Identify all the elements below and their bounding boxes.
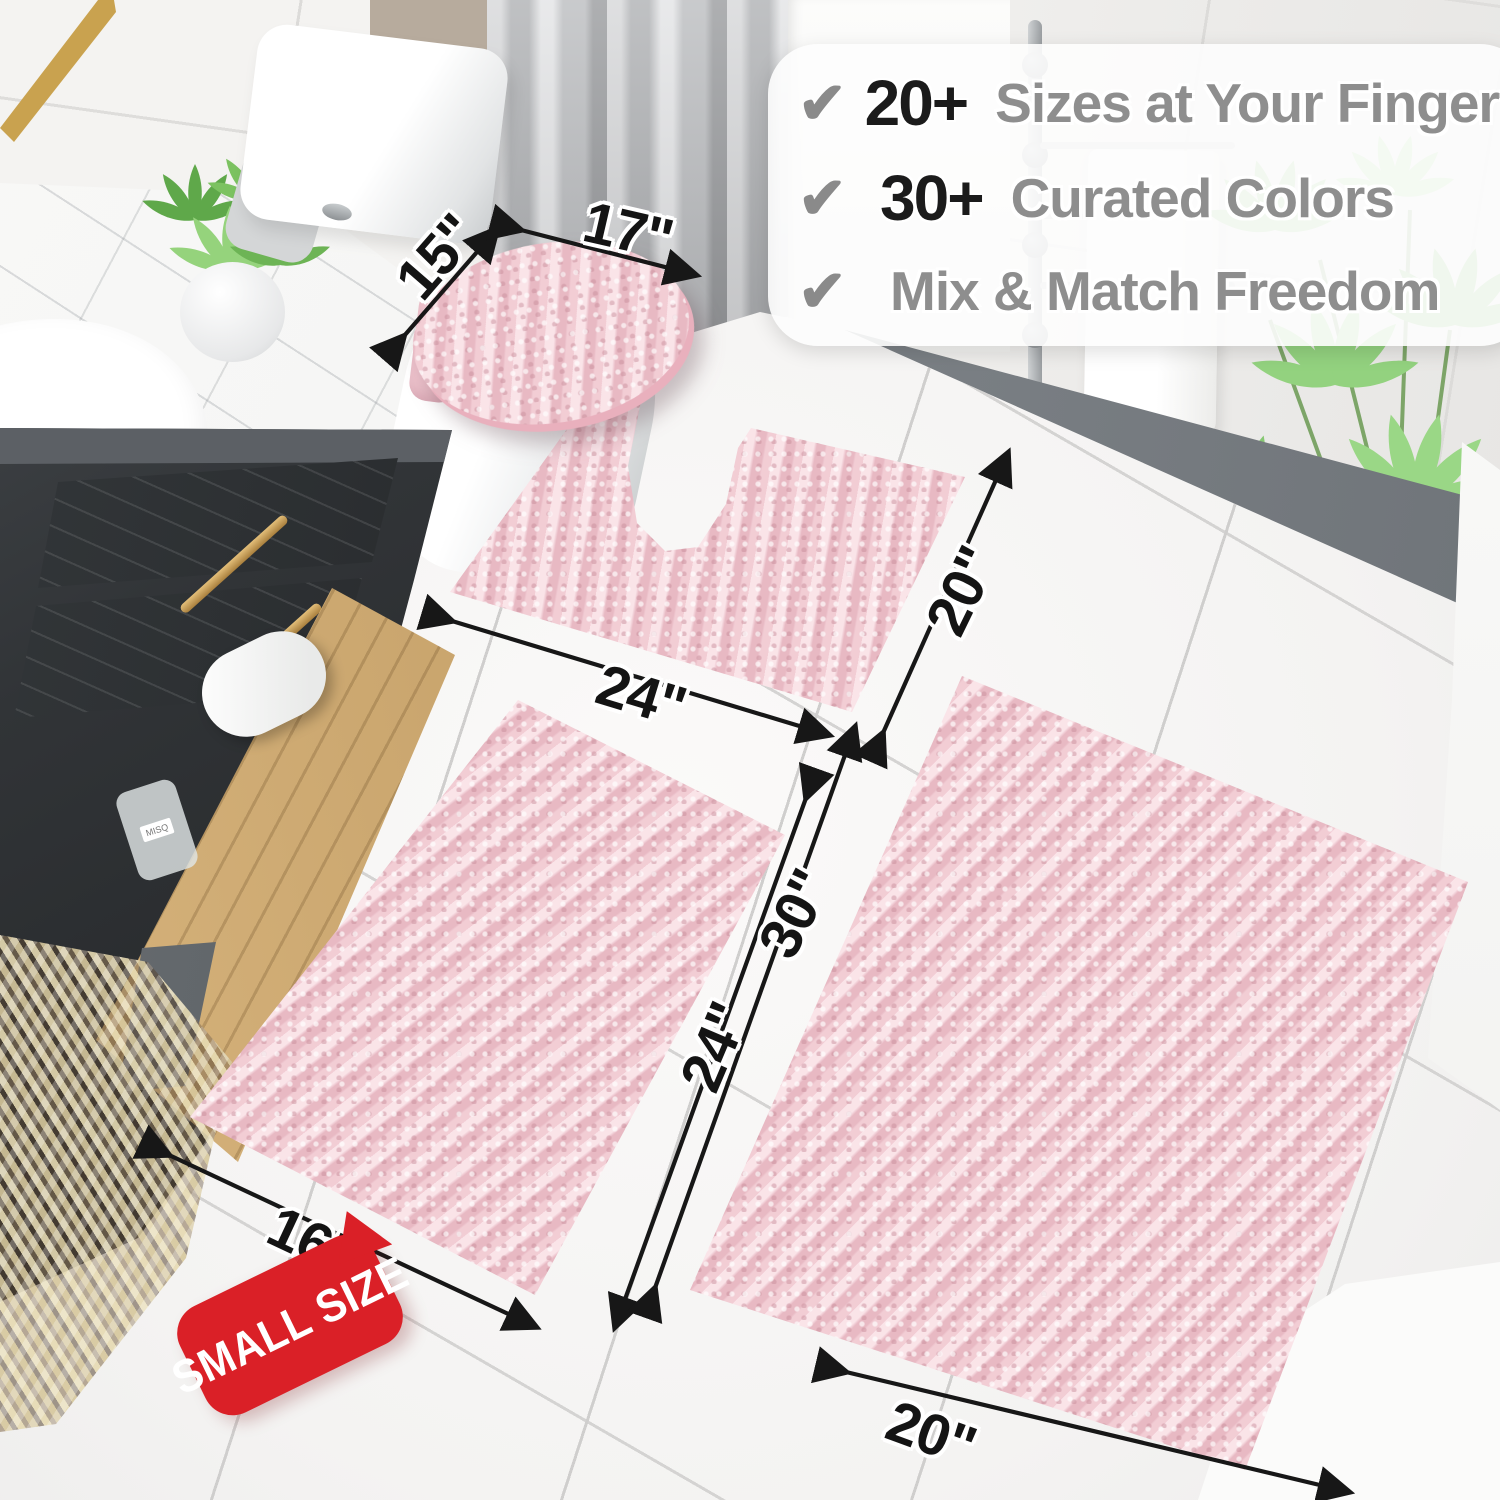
bottle-label: MISQ <box>140 818 174 843</box>
feature-label: Mix & Match Freedom <box>890 259 1439 323</box>
check-icon: ✔ <box>798 257 862 325</box>
feature-count: 20+ <box>865 66 968 140</box>
plant-pot <box>180 262 285 362</box>
toilet-tank <box>237 21 511 246</box>
feature-row-sizes: ✔ 20+ Sizes at Your Fingertips <box>798 66 1500 140</box>
check-icon: ✔ <box>798 164 862 232</box>
feature-row-mix-match: ✔ Mix & Match Freedom <box>798 257 1500 325</box>
feature-label: Sizes at Your Fingertips <box>995 71 1500 135</box>
check-icon: ✔ <box>798 69 847 137</box>
feature-callout-box: ✔ 20+ Sizes at Your Fingertips ✔ 30+ Cur… <box>768 44 1500 346</box>
feature-label: Curated Colors <box>1011 166 1394 230</box>
feature-count: 30+ <box>880 161 983 235</box>
bathroom-product-scene: MISQ 15" 17" 24" 20" 16" 24" 30" 20" <box>0 0 1500 1500</box>
feature-row-colors: ✔ 30+ Curated Colors <box>798 161 1500 235</box>
